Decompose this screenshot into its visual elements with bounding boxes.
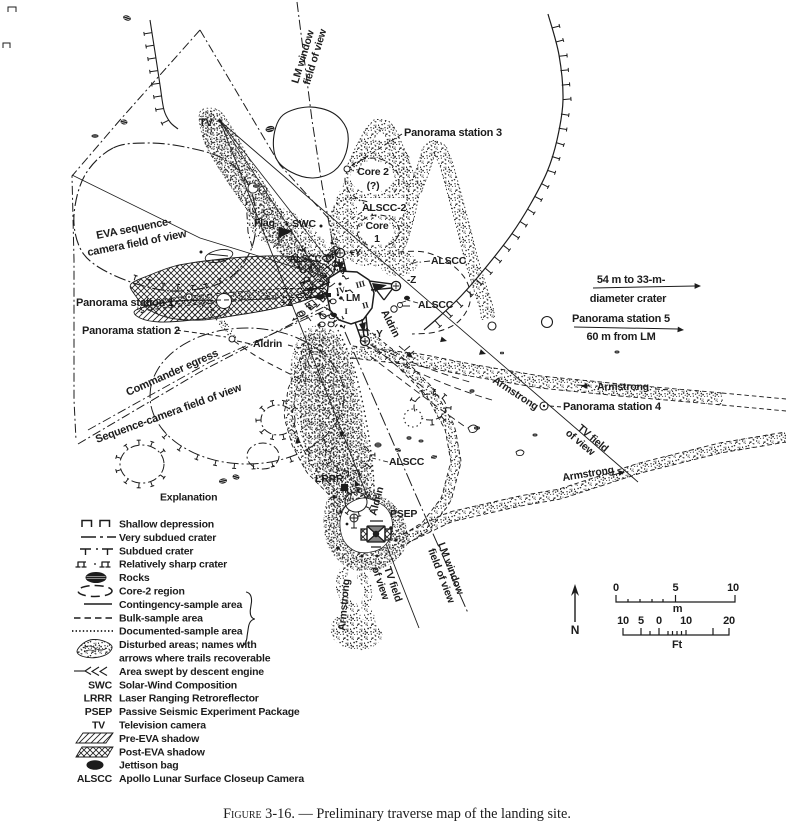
svg-text:5: 5	[638, 615, 644, 627]
svg-text:1: 1	[374, 233, 380, 245]
svg-text:+Z: +Z	[281, 298, 293, 309]
svg-text:LRRR: LRRR	[84, 693, 113, 705]
svg-text:Subdued crater: Subdued crater	[119, 545, 193, 557]
svg-text:PSEP: PSEP	[85, 706, 112, 718]
svg-text:ALSCC 1: ALSCC 1	[289, 254, 330, 265]
svg-text:+Y: +Y	[349, 248, 362, 259]
svg-text:N: N	[571, 623, 579, 637]
svg-text:Panorama station 3: Panorama station 3	[404, 127, 502, 139]
svg-text:Armstrong: Armstrong	[597, 381, 649, 393]
svg-text:60 m from LM: 60 m from LM	[586, 331, 655, 343]
svg-text:10: 10	[617, 615, 629, 627]
svg-text:0: 0	[656, 615, 662, 627]
svg-text:Figure 3-16. — Preliminary tra: Figure 3-16. — Preliminary traverse map …	[223, 806, 571, 822]
svg-text:LM: LM	[346, 293, 360, 304]
svg-text:Documented-sample area: Documented-sample area	[119, 626, 243, 638]
svg-text:Panorama station 4: Panorama station 4	[563, 401, 662, 413]
svg-text:Panorama station 5: Panorama station 5	[572, 313, 670, 325]
svg-text:m: m	[673, 603, 683, 615]
svg-text:Pre-EVA shadow: Pre-EVA shadow	[119, 733, 200, 745]
svg-text:Laser Ranging Retroreflector: Laser Ranging Retroreflector	[119, 693, 259, 705]
svg-text:Panorama station 1: Panorama station 1	[76, 297, 174, 309]
svg-text:Contingency-sample area: Contingency-sample area	[119, 599, 243, 611]
svg-text:PSEP: PSEP	[390, 508, 417, 520]
svg-text:arrows where trails recoverabl: arrows where trails recoverable	[119, 653, 271, 665]
svg-text:Core-2 region: Core-2 region	[119, 586, 185, 598]
svg-text:Panorama station 2: Panorama station 2	[82, 325, 180, 337]
svg-text:ALSCC-2: ALSCC-2	[362, 202, 406, 214]
svg-text:ALSCC: ALSCC	[77, 773, 113, 785]
svg-text:20: 20	[723, 615, 735, 627]
svg-text:LRRR: LRRR	[315, 473, 344, 485]
svg-text:Rocks: Rocks	[119, 572, 150, 584]
svg-text:Flag: Flag	[254, 217, 275, 229]
svg-text:5: 5	[673, 582, 679, 594]
svg-text:-Y: -Y	[373, 329, 383, 340]
svg-text:(?): (?)	[367, 180, 380, 192]
svg-text:SWC: SWC	[292, 218, 317, 230]
svg-text:10: 10	[680, 615, 692, 627]
svg-text:Disturbed areas; names with: Disturbed areas; names with	[119, 639, 257, 651]
svg-text:0: 0	[613, 582, 619, 594]
svg-text:TV: TV	[199, 117, 214, 129]
svg-text:54 m to 33-m-: 54 m to 33-m-	[597, 274, 666, 286]
svg-text:Ft: Ft	[672, 639, 683, 651]
svg-text:TV: TV	[92, 720, 105, 732]
svg-text:ALSCC: ALSCC	[418, 299, 454, 311]
svg-text:Shallow depression: Shallow depression	[119, 519, 214, 531]
svg-text:ALSCC: ALSCC	[431, 255, 467, 267]
svg-text:Solar-Wind Composition: Solar-Wind Composition	[119, 679, 237, 691]
svg-text:-Z: -Z	[407, 275, 416, 286]
svg-text:Bulk-sample area: Bulk-sample area	[119, 612, 203, 624]
svg-text:10: 10	[727, 582, 739, 594]
svg-text:Core 2: Core 2	[357, 166, 389, 178]
svg-text:SWC: SWC	[88, 679, 113, 691]
svg-text:Very subdued crater: Very subdued crater	[119, 532, 216, 544]
svg-text:Television camera: Television camera	[119, 720, 206, 732]
svg-text:Core: Core	[365, 220, 388, 232]
svg-text:diameter crater: diameter crater	[590, 293, 667, 305]
svg-text:Jettison bag: Jettison bag	[119, 760, 178, 772]
svg-text:Post-EVA shadow: Post-EVA shadow	[119, 746, 206, 758]
svg-text:Apollo Lunar Surface Closeup C: Apollo Lunar Surface Closeup Camera	[119, 773, 304, 785]
svg-text:ALSCC: ALSCC	[389, 456, 425, 468]
svg-text:Aldrin: Aldrin	[253, 338, 282, 350]
svg-text:Explanation: Explanation	[160, 492, 217, 504]
svg-text:Passive Seismic Experiment Pac: Passive Seismic Experiment Package	[119, 706, 300, 718]
svg-text:Relatively sharp crater: Relatively sharp crater	[119, 559, 227, 571]
svg-text:Area swept by descent engine: Area swept by descent engine	[119, 666, 264, 678]
